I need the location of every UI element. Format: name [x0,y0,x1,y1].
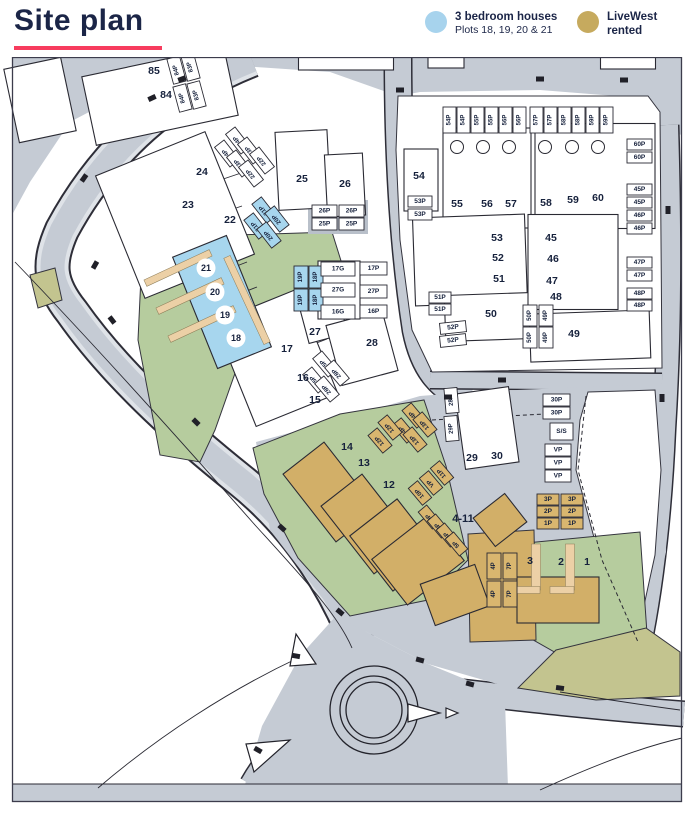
plot-label-21: 21 [201,263,211,273]
parking-label-30P: 30P [551,410,563,417]
parking-label-50P: 50P [527,310,533,321]
plot-label-55: 55 [451,198,463,210]
bottom-strip [12,784,682,801]
parking-label-58P: 58P [576,115,582,126]
plot-label-12: 12 [383,479,395,491]
parking-label-54P: 54P [461,115,467,126]
parking-label-47P: 47P [634,272,646,279]
parking-label-54P: 54P [447,115,453,126]
parking-label-19P: 19P [298,272,304,283]
parking-label-59P: 59P [590,115,596,126]
parking-label-49P: 49P [543,310,549,321]
house-rooflight-3 [539,141,552,154]
parking-label-30P: 30P [551,397,563,404]
plot-label-1: 1 [584,556,590,568]
title-underline [14,46,162,50]
plot-label-25: 25 [296,173,308,185]
plot-label-28: 28 [366,337,378,349]
parking-label-52P: 52P [447,336,460,344]
parking-label-VP: VP [554,460,563,467]
parking-label-53P: 53P [414,198,426,205]
parking-label-46P: 46P [634,212,646,219]
plot-label-50: 50 [485,308,497,320]
footpath-6 [516,587,540,594]
plot-label-26: 26 [339,178,351,190]
parking-label-51P: 51P [434,306,446,313]
parking-label-47P: 47P [634,259,646,266]
plot-label-29: 29 [466,452,478,464]
parking-label-56P: 56P [517,115,523,126]
parking-label-27P: 27P [368,288,380,295]
parking-label-57P: 57P [548,115,554,126]
parking-label-25P: 25P [319,221,331,228]
parking-label-18P: 18P [313,295,319,306]
parking-label-53P: 53P [414,211,426,218]
building-4 [601,57,656,69]
plot-label-16: 16 [297,372,309,384]
tan-dot-icon [577,11,599,33]
parking-label-26P: 26P [346,208,358,215]
parking-label-1P: 1P [544,520,553,527]
parking-label-46P: 46P [634,225,646,232]
east-connector [430,380,662,382]
page-header: Site plan 3 bedroom houses Plots 18, 19,… [0,0,694,57]
plot-label-56: 56 [481,198,493,210]
parking-label-19P: 19P [298,295,304,306]
building-19 [455,387,519,470]
plot-label-52: 52 [492,252,504,264]
site-plan-map: 84P83P84P83P24P23P22P24P23P22P21P20P21P2… [0,0,694,816]
crossing-hatch-16 [444,395,452,400]
plot-label-85: 85 [148,65,160,77]
parking-label-16P: 16P [368,308,380,315]
parking-label-60P: 60P [634,154,646,161]
house-rooflight-0 [451,141,464,154]
parking-label-25P: 25P [346,221,358,228]
plot-label-3: 3 [527,555,533,567]
plot-label-30: 30 [491,450,503,462]
parking-label-26P: 26P [319,208,331,215]
house-rooflight-2 [503,141,516,154]
footpath-4 [532,544,541,590]
parking-label-58P: 58P [562,115,568,126]
plot-label-84: 84 [160,89,172,101]
parking-label-18P: 18P [313,272,319,283]
crossing-hatch-17 [498,378,506,383]
parking-label-52P: 52P [447,323,460,331]
parking-label-56P: 56P [503,115,509,126]
crossing-hatch-14 [666,206,671,214]
parking-label-16G: 16G [332,309,344,316]
plot-label-14: 14 [341,441,353,453]
plot-label-48: 48 [550,291,562,303]
house-rooflight-4 [566,141,579,154]
parking-label-60P: 60P [634,141,646,148]
crossing-hatch-15 [660,394,665,402]
parking-label-57P: 57P [534,115,540,126]
plot-label-54: 54 [413,170,425,182]
plot-label-13: 13 [358,457,370,469]
plot-label-59: 59 [567,194,579,206]
parking-label-48P: 48P [634,302,646,309]
parking-label-3P: 3P [568,496,577,503]
parking-label-55P: 55P [489,115,495,126]
parking-label-29P: 29P [448,423,455,434]
plot-label-23: 23 [182,199,194,211]
parking-label-4P: 4P [491,562,497,569]
parking-label-S/S: S/S [556,428,567,435]
plot-label-27: 27 [309,326,321,338]
parking-label-VP: VP [554,447,563,454]
plot-label-20: 20 [210,287,220,297]
plot-label-58: 58 [540,197,552,209]
parking-label-49P: 49P [543,332,549,343]
parking-label-45P: 45P [634,199,646,206]
legend-livewest-rented: LiveWest rented [577,10,694,39]
legend-label: 3 bedroom houses [455,10,557,24]
footpath-7 [550,587,574,594]
crossing-hatch-13 [536,77,544,82]
legend-sublabel: Plots 18, 19, 20 & 21 [455,24,557,38]
plot-label-2: 2 [558,556,564,568]
plot-label-4-11: 4-11 [452,513,473,525]
plot-label-18: 18 [231,333,241,343]
plot-label-47: 47 [546,275,558,287]
plot-label-49: 49 [568,328,580,340]
plot-label-60: 60 [592,192,604,204]
parking-label-45P: 45P [634,186,646,193]
plot-label-17: 17 [281,343,293,355]
legend-label: LiveWest rented [607,10,694,39]
plot-label-22: 22 [224,214,236,226]
plot-label-19: 19 [220,310,230,320]
parking-label-59P: 59P [604,115,610,126]
parking-label-48P: 48P [634,290,646,297]
crossing-hatch-11 [620,78,628,83]
parking-label-7P: 7P [507,590,513,597]
parking-label-2P: 2P [568,508,577,515]
blue-dot-icon [425,11,447,33]
parking-label-17P: 17P [368,265,380,272]
plot-label-57: 57 [505,198,517,210]
parking-label-1P: 1P [568,520,577,527]
plot-label-45: 45 [545,232,557,244]
house-rooflight-1 [477,141,490,154]
plot-label-24: 24 [196,166,208,178]
parking-label-51P: 51P [434,294,446,301]
parking-label-27G: 27G [332,287,344,294]
page-title: Site plan [14,4,144,38]
parking-label-3P: 3P [544,496,553,503]
plot-label-15: 15 [309,394,321,406]
livewest-building-25 [517,577,599,623]
parking-label-50P: 50P [527,332,533,343]
building-6 [275,130,331,211]
parking-label-4P: 4P [491,590,497,597]
crossing-hatch-12 [396,88,404,93]
parking-label-VP: VP [554,473,563,480]
parking-label-7P: 7P [507,562,513,569]
plot-label-51: 51 [493,273,505,285]
house-rooflight-5 [592,141,605,154]
legend-3-bedroom: 3 bedroom houses Plots 18, 19, 20 & 21 [425,10,557,38]
parking-label-55P: 55P [475,115,481,126]
footpath-5 [566,544,575,590]
building-17 [528,215,618,310]
plot-label-53: 53 [491,232,503,244]
parking-label-17G: 17G [332,266,344,273]
parking-label-2P: 2P [544,508,553,515]
plot-label-46: 46 [547,253,559,265]
